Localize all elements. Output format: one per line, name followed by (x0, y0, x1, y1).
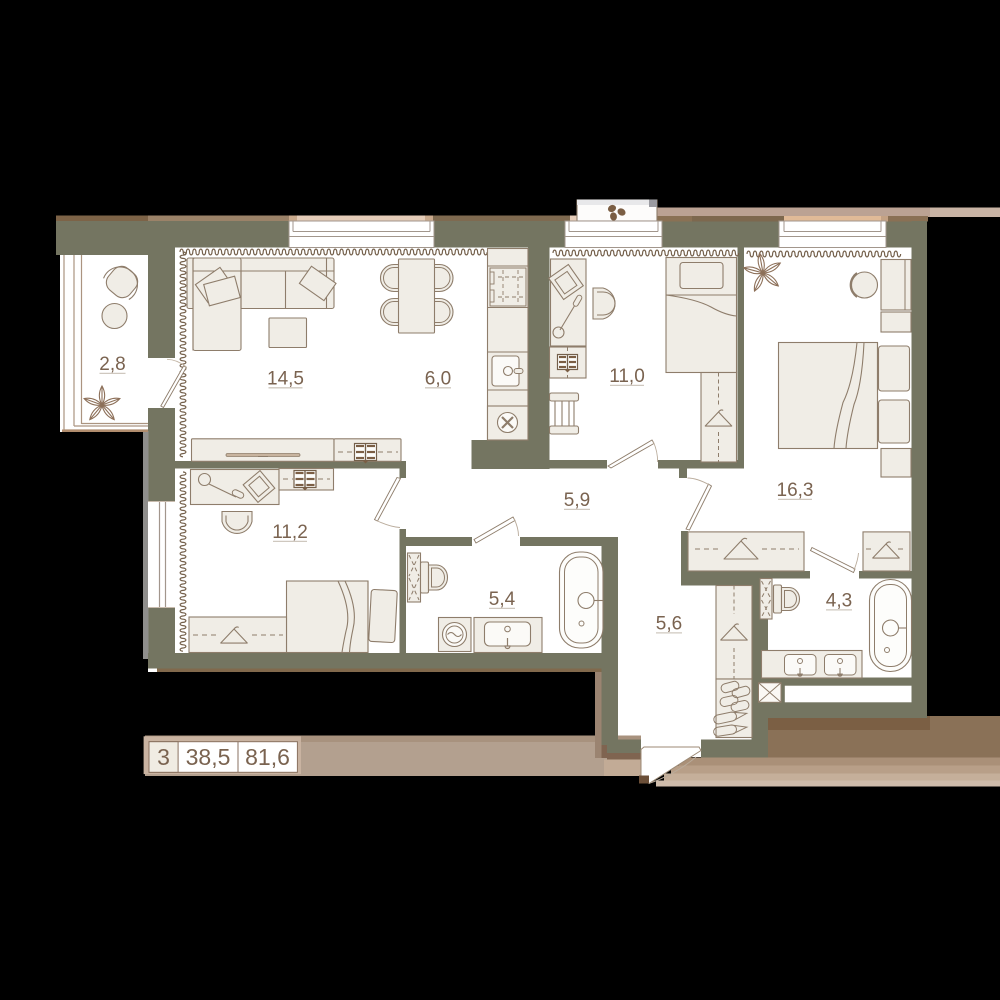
svg-text:16,3: 16,3 (777, 480, 814, 501)
svg-text:38,5: 38,5 (186, 744, 231, 770)
svg-text:14,5: 14,5 (267, 368, 304, 389)
svg-text:11,0: 11,0 (609, 366, 645, 387)
svg-text:11,2: 11,2 (272, 522, 308, 543)
svg-text:6,0: 6,0 (425, 368, 451, 389)
svg-text:4,3: 4,3 (826, 591, 852, 612)
svg-text:5,4: 5,4 (489, 589, 516, 610)
svg-text:5,6: 5,6 (656, 614, 682, 635)
svg-text:81,6: 81,6 (245, 744, 290, 770)
svg-text:5,9: 5,9 (564, 490, 590, 511)
svg-text:3: 3 (157, 744, 170, 770)
svg-text:2,8: 2,8 (99, 354, 125, 375)
